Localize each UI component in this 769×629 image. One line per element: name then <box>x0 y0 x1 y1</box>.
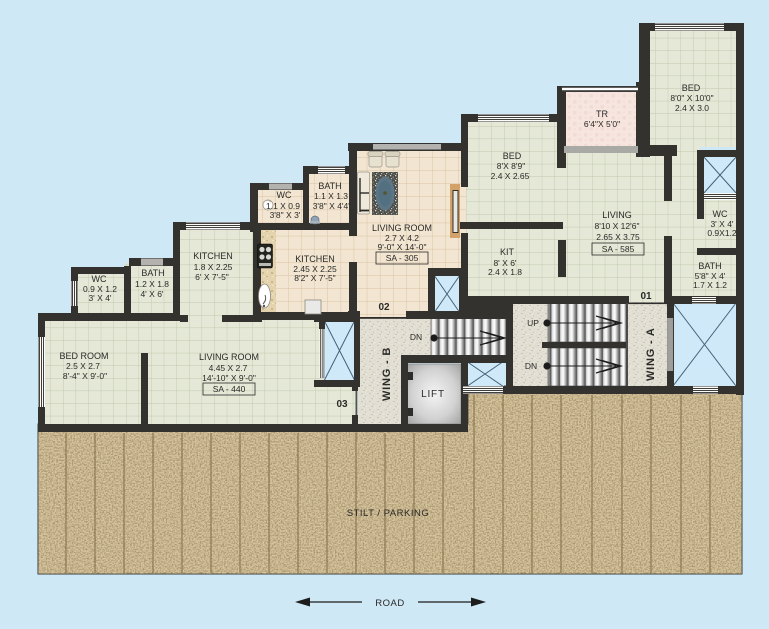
svg-text:4.45 X 2.7: 4.45 X 2.7 <box>209 363 248 373</box>
svg-text:BATH: BATH <box>141 268 164 278</box>
svg-text:9'-0" X 14'-0": 9'-0" X 14'-0" <box>378 242 427 252</box>
svg-text:ROAD: ROAD <box>375 598 404 609</box>
svg-text:1.8 X 2.25: 1.8 X 2.25 <box>194 262 233 272</box>
svg-text:LIVING ROOM: LIVING ROOM <box>372 223 432 233</box>
svg-text:UP: UP <box>527 318 539 328</box>
svg-text:1.7 X 1.2: 1.7 X 1.2 <box>693 280 727 290</box>
svg-text:LIFT: LIFT <box>421 389 445 400</box>
svg-text:3' X 4': 3' X 4' <box>88 293 111 303</box>
svg-text:WING - A: WING - A <box>645 327 657 381</box>
svg-text:BED ROOM: BED ROOM <box>59 351 108 361</box>
svg-text:3'8" X 3': 3'8" X 3' <box>270 210 301 220</box>
svg-text:1.2 X 1.8: 1.2 X 1.8 <box>135 279 169 289</box>
svg-text:6'4"X 5'0": 6'4"X 5'0" <box>584 119 620 129</box>
svg-text:0.9X1.2: 0.9X1.2 <box>707 228 737 238</box>
svg-text:3'8" X 4'4": 3'8" X 4'4" <box>313 201 352 211</box>
svg-text:2.65 X 3.75: 2.65 X 3.75 <box>596 232 640 242</box>
svg-text:BATH: BATH <box>698 261 721 271</box>
svg-text:2.4 X 3.0: 2.4 X 3.0 <box>675 103 709 113</box>
svg-text:4' X 6': 4' X 6' <box>140 289 163 299</box>
svg-text:KIT: KIT <box>500 247 515 257</box>
svg-text:KITCHEN: KITCHEN <box>295 254 335 264</box>
svg-text:WC: WC <box>92 274 107 284</box>
svg-text:02: 02 <box>378 302 390 313</box>
svg-text:8'0" X 10'0": 8'0" X 10'0" <box>670 93 713 103</box>
svg-text:01: 01 <box>640 291 652 302</box>
svg-text:03: 03 <box>336 399 348 410</box>
svg-text:BED: BED <box>503 151 522 161</box>
svg-text:BATH: BATH <box>318 181 341 191</box>
svg-text:WC: WC <box>277 190 292 200</box>
svg-text:8'-4" X 9'-0": 8'-4" X 9'-0" <box>63 371 107 381</box>
svg-text:DN: DN <box>410 332 422 342</box>
svg-text:1.1 X 1.3: 1.1 X 1.3 <box>314 191 348 201</box>
svg-text:SA - 305: SA - 305 <box>386 253 419 263</box>
svg-text:14'-10" X 9'-0": 14'-10" X 9'-0" <box>202 373 256 383</box>
svg-text:8'2" X 7'-5": 8'2" X 7'-5" <box>294 273 335 283</box>
svg-text:SA - 440: SA - 440 <box>213 384 246 394</box>
svg-text:8'10 X 12'6": 8'10 X 12'6" <box>594 221 639 231</box>
svg-text:WING - B: WING - B <box>381 347 393 401</box>
svg-text:LIVING ROOM: LIVING ROOM <box>199 352 259 362</box>
svg-text:TR: TR <box>596 109 608 119</box>
svg-text:2.4 X 2.65: 2.4 X 2.65 <box>491 171 530 181</box>
svg-text:WC: WC <box>713 209 728 219</box>
svg-text:SA - 585: SA - 585 <box>602 244 635 254</box>
svg-text:8'X 8'9": 8'X 8'9" <box>497 161 525 171</box>
svg-text:STILT / PARKING: STILT / PARKING <box>347 508 429 519</box>
svg-text:6' X 7'-5": 6' X 7'-5" <box>195 272 229 282</box>
svg-text:LIVING: LIVING <box>602 210 632 220</box>
svg-text:2.5 X 2.7: 2.5 X 2.7 <box>66 361 100 371</box>
svg-text:DN: DN <box>525 361 537 371</box>
svg-text:KITCHEN: KITCHEN <box>193 251 233 261</box>
svg-text:2.4 X 1.8: 2.4 X 1.8 <box>488 267 522 277</box>
svg-text:BED: BED <box>682 83 701 93</box>
